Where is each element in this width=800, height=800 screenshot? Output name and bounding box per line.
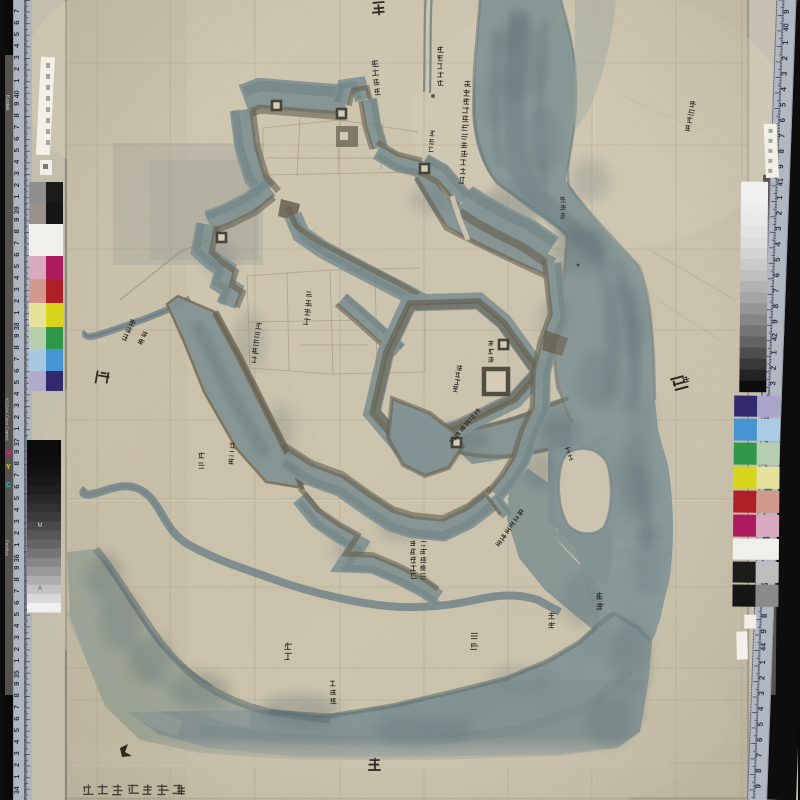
svg-text:2: 2 (12, 763, 21, 767)
svg-text:6: 6 (12, 252, 21, 256)
svg-text:6: 6 (12, 20, 21, 24)
svg-text:40: 40 (14, 90, 21, 98)
svg-text:9: 9 (12, 334, 21, 338)
svg-text:9: 9 (12, 682, 21, 686)
svg-text:38: 38 (14, 322, 21, 330)
svg-text:7: 7 (12, 9, 21, 13)
svg-text:3: 3 (12, 635, 21, 639)
svg-text:3: 3 (12, 55, 21, 59)
svg-text:41: 41 (776, 178, 785, 186)
svg-text:2: 2 (12, 299, 21, 303)
svg-text:7: 7 (12, 705, 21, 709)
svg-text:8: 8 (12, 461, 21, 465)
svg-text:42: 42 (770, 333, 779, 341)
svg-text:8: 8 (12, 693, 21, 697)
svg-text:7: 7 (777, 133, 786, 138)
svg-text:KODAK Color Control: KODAK Color Control (5, 398, 10, 440)
svg-text:40: 40 (781, 23, 790, 31)
svg-text:6: 6 (12, 368, 21, 372)
svg-text:2: 2 (12, 415, 21, 419)
svg-text:7: 7 (12, 589, 21, 593)
svg-text:2: 2 (12, 183, 21, 187)
svg-text:9: 9 (12, 450, 21, 454)
svg-text:8: 8 (12, 229, 21, 233)
svg-text:Kodak: Kodak (4, 95, 10, 111)
svg-text:2: 2 (12, 647, 21, 651)
svg-text:3: 3 (12, 287, 21, 291)
svg-text:44: 44 (759, 643, 768, 651)
svg-text:Patches: Patches (5, 540, 10, 557)
svg-text:3: 3 (12, 751, 21, 755)
svg-text:7: 7 (755, 753, 764, 758)
svg-text:35: 35 (14, 670, 21, 678)
svg-text:9: 9 (12, 566, 21, 570)
svg-text:8: 8 (12, 577, 21, 581)
svg-text:39: 39 (14, 206, 21, 214)
svg-text:2: 2 (12, 531, 21, 535)
svg-text:34: 34 (14, 786, 21, 794)
svg-text:9: 9 (12, 102, 21, 106)
svg-text:7: 7 (12, 125, 21, 129)
svg-text:6: 6 (12, 484, 21, 488)
svg-text:7: 7 (772, 288, 781, 293)
svg-text:36: 36 (14, 554, 21, 562)
svg-text:A: A (38, 586, 42, 592)
svg-text:8: 8 (12, 113, 21, 117)
svg-text:3: 3 (12, 171, 21, 175)
svg-text:M: M (38, 523, 43, 529)
svg-text:37: 37 (14, 438, 21, 446)
svg-text:Y: Y (6, 464, 11, 471)
svg-text:7: 7 (12, 241, 21, 245)
svg-text:6: 6 (12, 136, 21, 140)
svg-text:6: 6 (12, 716, 21, 720)
svg-text:3: 3 (12, 403, 21, 407)
svg-text:2: 2 (12, 67, 21, 71)
svg-text:9: 9 (12, 218, 21, 222)
svg-text:C: C (6, 482, 11, 489)
svg-text:3: 3 (12, 519, 21, 523)
svg-text:6: 6 (12, 600, 21, 604)
svg-text:8: 8 (12, 345, 21, 349)
svg-text:7: 7 (12, 357, 21, 361)
svg-text:7: 7 (12, 473, 21, 477)
